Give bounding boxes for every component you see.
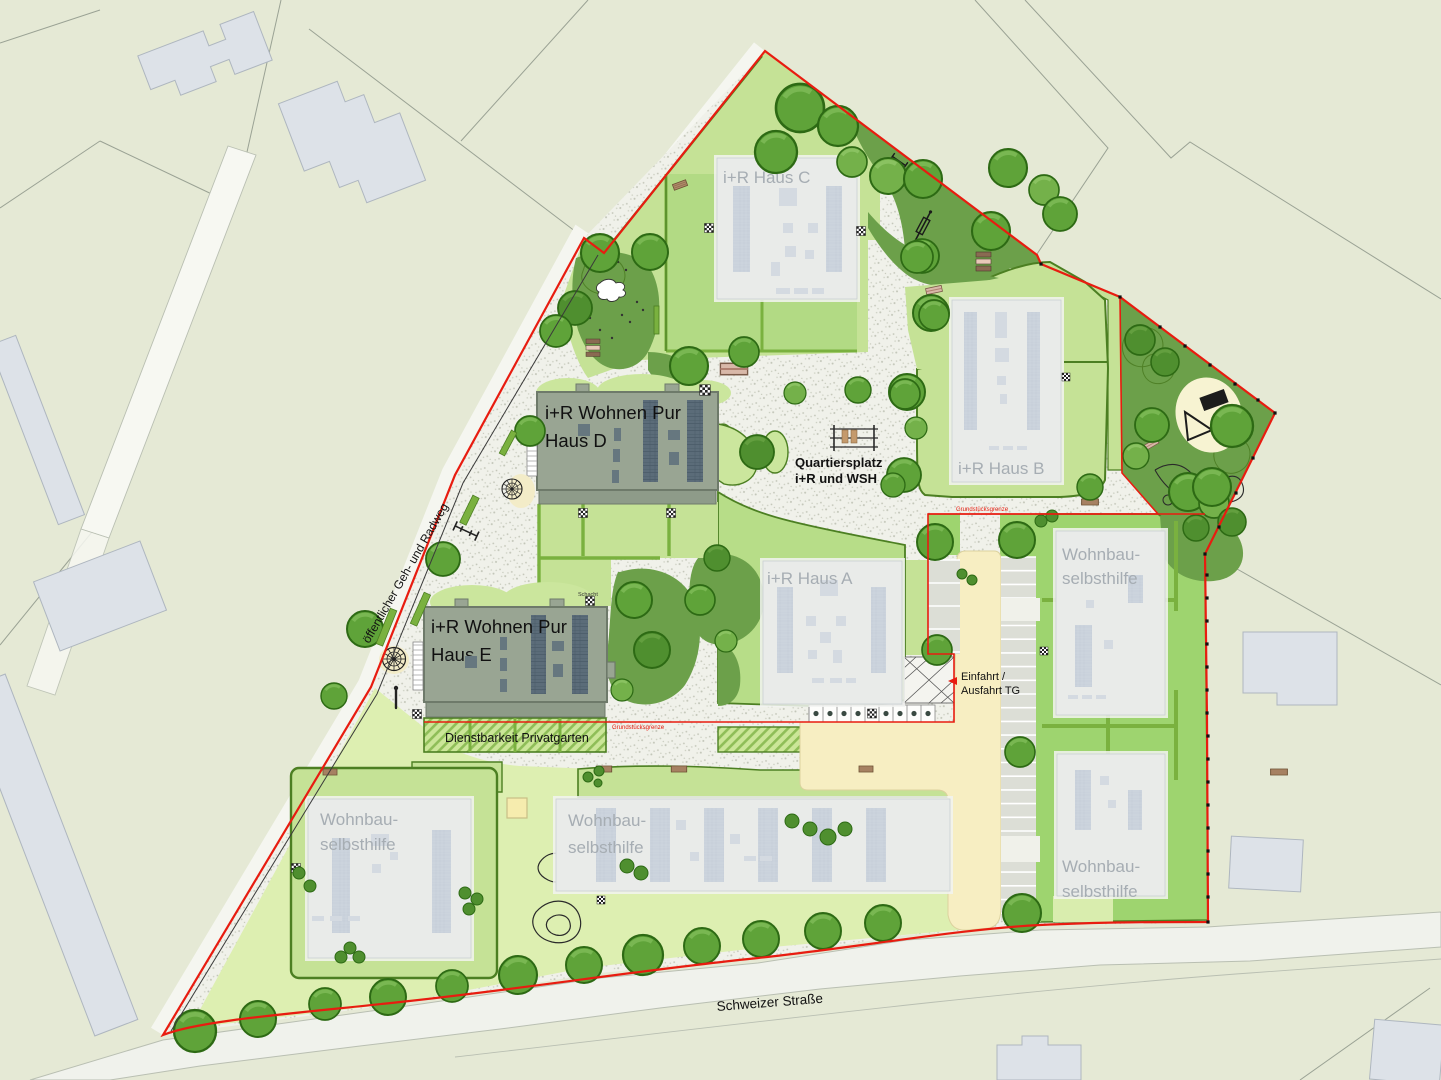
- svg-text:i+R Wohnen Pur: i+R Wohnen Pur: [545, 402, 681, 423]
- svg-text:i+R Wohnen Pur: i+R Wohnen Pur: [431, 616, 567, 637]
- svg-text:i+R Haus A: i+R Haus A: [767, 569, 853, 588]
- svg-text:Schacht: Schacht: [578, 592, 598, 598]
- svg-text:Haus D: Haus D: [545, 430, 607, 451]
- svg-text:Dienstbarkeit Privatgarten: Dienstbarkeit Privatgarten: [445, 731, 589, 745]
- svg-text:i+R Haus B: i+R Haus B: [958, 459, 1044, 478]
- svg-text:Wohnbau-: Wohnbau-: [1062, 545, 1140, 564]
- svg-text:selbsthilfe: selbsthilfe: [568, 838, 644, 857]
- svg-text:Quartiersplatz: Quartiersplatz: [795, 455, 883, 470]
- svg-text:selbsthilfe: selbsthilfe: [1062, 569, 1138, 588]
- svg-text:Grundstücksgrenze: Grundstücksgrenze: [956, 507, 1009, 513]
- svg-text:Einfahrt /: Einfahrt /: [961, 671, 1006, 683]
- svg-text:selbsthilfe: selbsthilfe: [320, 835, 396, 854]
- svg-text:i+R und WSH: i+R und WSH: [795, 471, 877, 486]
- svg-text:Wohnbau-: Wohnbau-: [1062, 857, 1140, 876]
- svg-text:Haus E: Haus E: [431, 644, 492, 665]
- svg-text:Wohnbau-: Wohnbau-: [568, 811, 646, 830]
- svg-text:Ausfahrt TG: Ausfahrt TG: [961, 685, 1020, 697]
- svg-text:selbsthilfe: selbsthilfe: [1062, 882, 1138, 901]
- svg-text:Wohnbau-: Wohnbau-: [320, 810, 398, 829]
- svg-text:Grundstücksgrenze: Grundstücksgrenze: [612, 725, 665, 731]
